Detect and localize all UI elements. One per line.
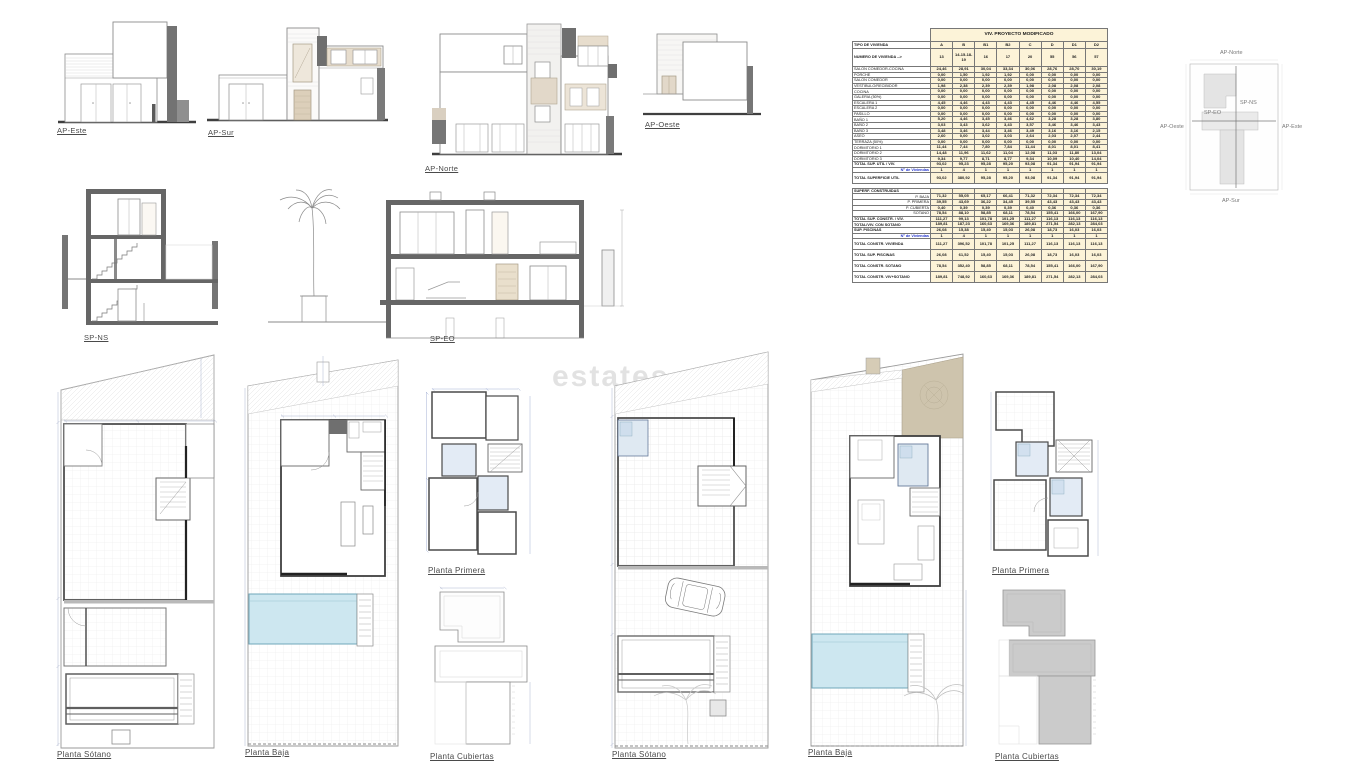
table-cell: 18,73 <box>1041 250 1063 261</box>
surface-table-grid: VIV. PROYECTO MODIFICADOTIPO DE VIVIENDA… <box>852 28 1108 283</box>
table-row-label: TOTAL SUPERFICIE UTIL <box>853 173 931 184</box>
table-cell: 352,40 <box>953 261 975 272</box>
plan-g1-primera: Planta Primera <box>426 388 534 564</box>
table-cell: 15,03 <box>997 250 1019 261</box>
elevation-label: AP-Oeste <box>645 120 680 129</box>
elevation-ap-oeste-drawing <box>643 28 765 126</box>
table-cell: 16,03 <box>1085 250 1107 261</box>
elevation-label: AP-Este <box>57 126 87 135</box>
table-row: TOTAL/VIV. CON SOTANO189,81187,23160,631… <box>853 222 1108 228</box>
plan-label: Planta Primera <box>992 566 1049 575</box>
table-cell: 111,27 <box>1019 239 1041 250</box>
section-label: SP-NS <box>84 333 108 342</box>
table-cell: 101,78 <box>975 239 997 250</box>
table-row-label: TOTAL CONSTR. SOTANO <box>853 261 931 272</box>
site-key-sp-eo-label: SP-EO <box>1204 110 1221 116</box>
table-cell: 155,41 <box>1041 261 1063 272</box>
plan-g2-cubiertas-drawing <box>993 586 1101 752</box>
table-cell: 58,85 <box>975 261 997 272</box>
surface-table: VIV. PROYECTO MODIFICADOTIPO DE VIVIENDA… <box>852 28 1108 283</box>
table-cell: 166,00 <box>1063 261 1085 272</box>
table-cell: 95,28 <box>975 173 997 184</box>
table-cell: 189,81 <box>1019 272 1041 283</box>
table-numero-value: 20 <box>1019 49 1041 67</box>
table-cell: 91,34 <box>1041 173 1063 184</box>
table-cell: 189,81 <box>931 272 953 283</box>
plan-g2-baja-drawing <box>806 350 968 750</box>
table-row: TOTAL SUPERFICIE UTIL93,02380,9295,2895,… <box>853 173 1108 184</box>
table-cell: 116,13 <box>1041 239 1063 250</box>
site-key: AP-Norte AP-Oeste AP-Este AP-Sur SP-NS S… <box>1178 42 1294 212</box>
table-row: TOTAL CONSTR. VIV+SOTANO189,81748,92160,… <box>853 272 1108 283</box>
plan-label: Planta Primera <box>428 566 485 575</box>
table-row-label: TOTAL CONSTR. VIV+SOTANO <box>853 272 931 283</box>
section-sp-eo-drawing <box>268 192 628 344</box>
table-numero-value: 55 <box>1041 49 1063 67</box>
table-cell: 284,03 <box>1085 272 1107 283</box>
plan-label: Planta Cubiertas <box>430 752 494 761</box>
plan-g1-primera-drawing <box>426 388 534 564</box>
table-cell: 91,94 <box>1085 173 1107 184</box>
plan-g2-cubiertas: Planta Cubiertas <box>993 586 1101 752</box>
table-column-header: B <box>953 42 975 49</box>
site-key-sp-ns-label: SP-NS <box>1240 100 1257 106</box>
table-cell: 61,52 <box>953 250 975 261</box>
elevation-label: AP-Norte <box>425 164 458 173</box>
table-cell: 78,54 <box>931 261 953 272</box>
plan-g1-cubiertas: Planta Cubiertas <box>430 586 532 752</box>
table-numero-value: 17 <box>997 49 1019 67</box>
table-cell: 26,08 <box>931 250 953 261</box>
table-cell: 95,20 <box>997 173 1019 184</box>
plan-g2-primera-drawing <box>990 388 1102 564</box>
elevation-ap-oeste: AP-Oeste <box>643 28 765 126</box>
table-column-header: C <box>1019 42 1041 49</box>
plan-label: Planta Baja <box>808 748 852 757</box>
table-cell: 271,54 <box>1041 272 1063 283</box>
table-cell: 169,36 <box>997 272 1019 283</box>
plan-g1-baja-drawing <box>243 356 401 750</box>
table-cell: 167,90 <box>1085 261 1107 272</box>
plan-g1-baja: Planta Baja <box>243 356 401 750</box>
table-numero-value: 13 <box>931 49 953 67</box>
table-cell: 26,08 <box>1019 250 1041 261</box>
table-row: SALON COMEDOR-COCINA24,4628,9130,0433,34… <box>853 67 1108 73</box>
elevation-label: AP-Sur <box>208 128 234 137</box>
table-row: TOTAL SUP. CONSTR. / VIV.111,2799,13101,… <box>853 216 1108 222</box>
table-numero-label: NUMERO DE VIVIENDA --> <box>853 49 931 67</box>
section-label: SP-EO <box>430 334 455 343</box>
table-cell: 116,13 <box>1085 239 1107 250</box>
plan-label: Planta Sótano <box>57 750 111 759</box>
table-numero-value: 16 <box>975 49 997 67</box>
table-row: TOTAL CONSTR. VIVIENDA111,27396,52101,78… <box>853 239 1108 250</box>
plan-g2-primera: Planta Primera <box>990 388 1102 564</box>
table-cell: 282,13 <box>1063 272 1085 283</box>
plan-label: Planta Baja <box>245 748 289 757</box>
table-column-header: D <box>1041 42 1063 49</box>
plan-g2-sotano: Planta Sótano <box>610 348 772 752</box>
table-column-header: B1 <box>975 42 997 49</box>
plan-g1-cubiertas-drawing <box>430 586 532 752</box>
table-row-label: TOTAL CONSTR. VIVIENDA <box>853 239 931 250</box>
site-key-north-label: AP-Norte <box>1220 50 1243 56</box>
table-cell: 78,54 <box>1019 261 1041 272</box>
plan-g2-baja: Planta Baja <box>806 350 968 750</box>
plan-g2-sotano-drawing <box>610 348 772 752</box>
elevation-ap-norte-drawing <box>432 20 627 166</box>
table-row: TOTAL SUP. PISCINAS26,0861,5215,4015,032… <box>853 250 1108 261</box>
table-cell: 101,25 <box>997 239 1019 250</box>
section-sp-ns: SP-NS <box>62 183 242 343</box>
section-sp-ns-drawing <box>62 183 242 343</box>
table-row: TOTAL CONSTR. SOTANO78,54352,4058,8568,1… <box>853 261 1108 272</box>
elevation-ap-este: AP-Este <box>55 14 205 136</box>
table-column-header: A <box>931 42 953 49</box>
table-numero-value: 56 <box>1063 49 1085 67</box>
table-cell: 15,40 <box>975 250 997 261</box>
table-cell: 111,27 <box>931 239 953 250</box>
table-column-header: B2 <box>997 42 1019 49</box>
palm-tree-icon <box>280 190 340 322</box>
table-cell: 748,92 <box>953 272 975 283</box>
table-type-label: TIPO DE VIVIENDA <box>853 42 931 49</box>
elevation-ap-sur: AP-Sur <box>205 18 390 133</box>
table-title: VIV. PROYECTO MODIFICADO <box>931 29 1108 42</box>
drawing-sheet: estates.c AP-Este <box>0 0 1366 768</box>
table-row: TOTAL SUP. UTIL / VIV.93,0295,2395,2895,… <box>853 162 1108 168</box>
site-key-drawing <box>1178 42 1294 212</box>
table-corner-cell <box>853 29 931 42</box>
table-cell: 380,92 <box>953 173 975 184</box>
table-numero-value: 14-15-18-19 <box>953 49 975 67</box>
table-cell: 93,08 <box>1019 173 1041 184</box>
site-key-east-label: AP-Este <box>1282 124 1302 130</box>
plan-label: Planta Sótano <box>612 750 666 759</box>
plan-g1-sotano-drawing <box>56 350 218 752</box>
elevation-ap-norte: AP-Norte <box>432 20 627 166</box>
elevation-ap-este-drawing <box>55 14 205 136</box>
table-cell: 160,63 <box>975 272 997 283</box>
table-cell: 116,13 <box>1063 239 1085 250</box>
table-numero-value: 57 <box>1085 49 1107 67</box>
table-cell: 16,03 <box>1063 250 1085 261</box>
table-row-label: TOTAL SUP. PISCINAS <box>853 250 931 261</box>
table-cell: 91,94 <box>1063 173 1085 184</box>
elevation-ap-sur-drawing <box>205 18 390 133</box>
table-cell: 93,02 <box>931 173 953 184</box>
table-column-header: D1 <box>1063 42 1085 49</box>
section-sp-eo: SP-EO <box>268 192 628 344</box>
table-column-header: D2 <box>1085 42 1107 49</box>
table-cell: 396,52 <box>953 239 975 250</box>
site-key-south-label: AP-Sur <box>1222 198 1240 204</box>
site-key-west-label: AP-Oeste <box>1160 124 1184 130</box>
plan-label: Planta Cubiertas <box>995 752 1059 761</box>
table-cell: 68,11 <box>997 261 1019 272</box>
plan-g1-sotano: Planta Sótano <box>56 350 218 752</box>
